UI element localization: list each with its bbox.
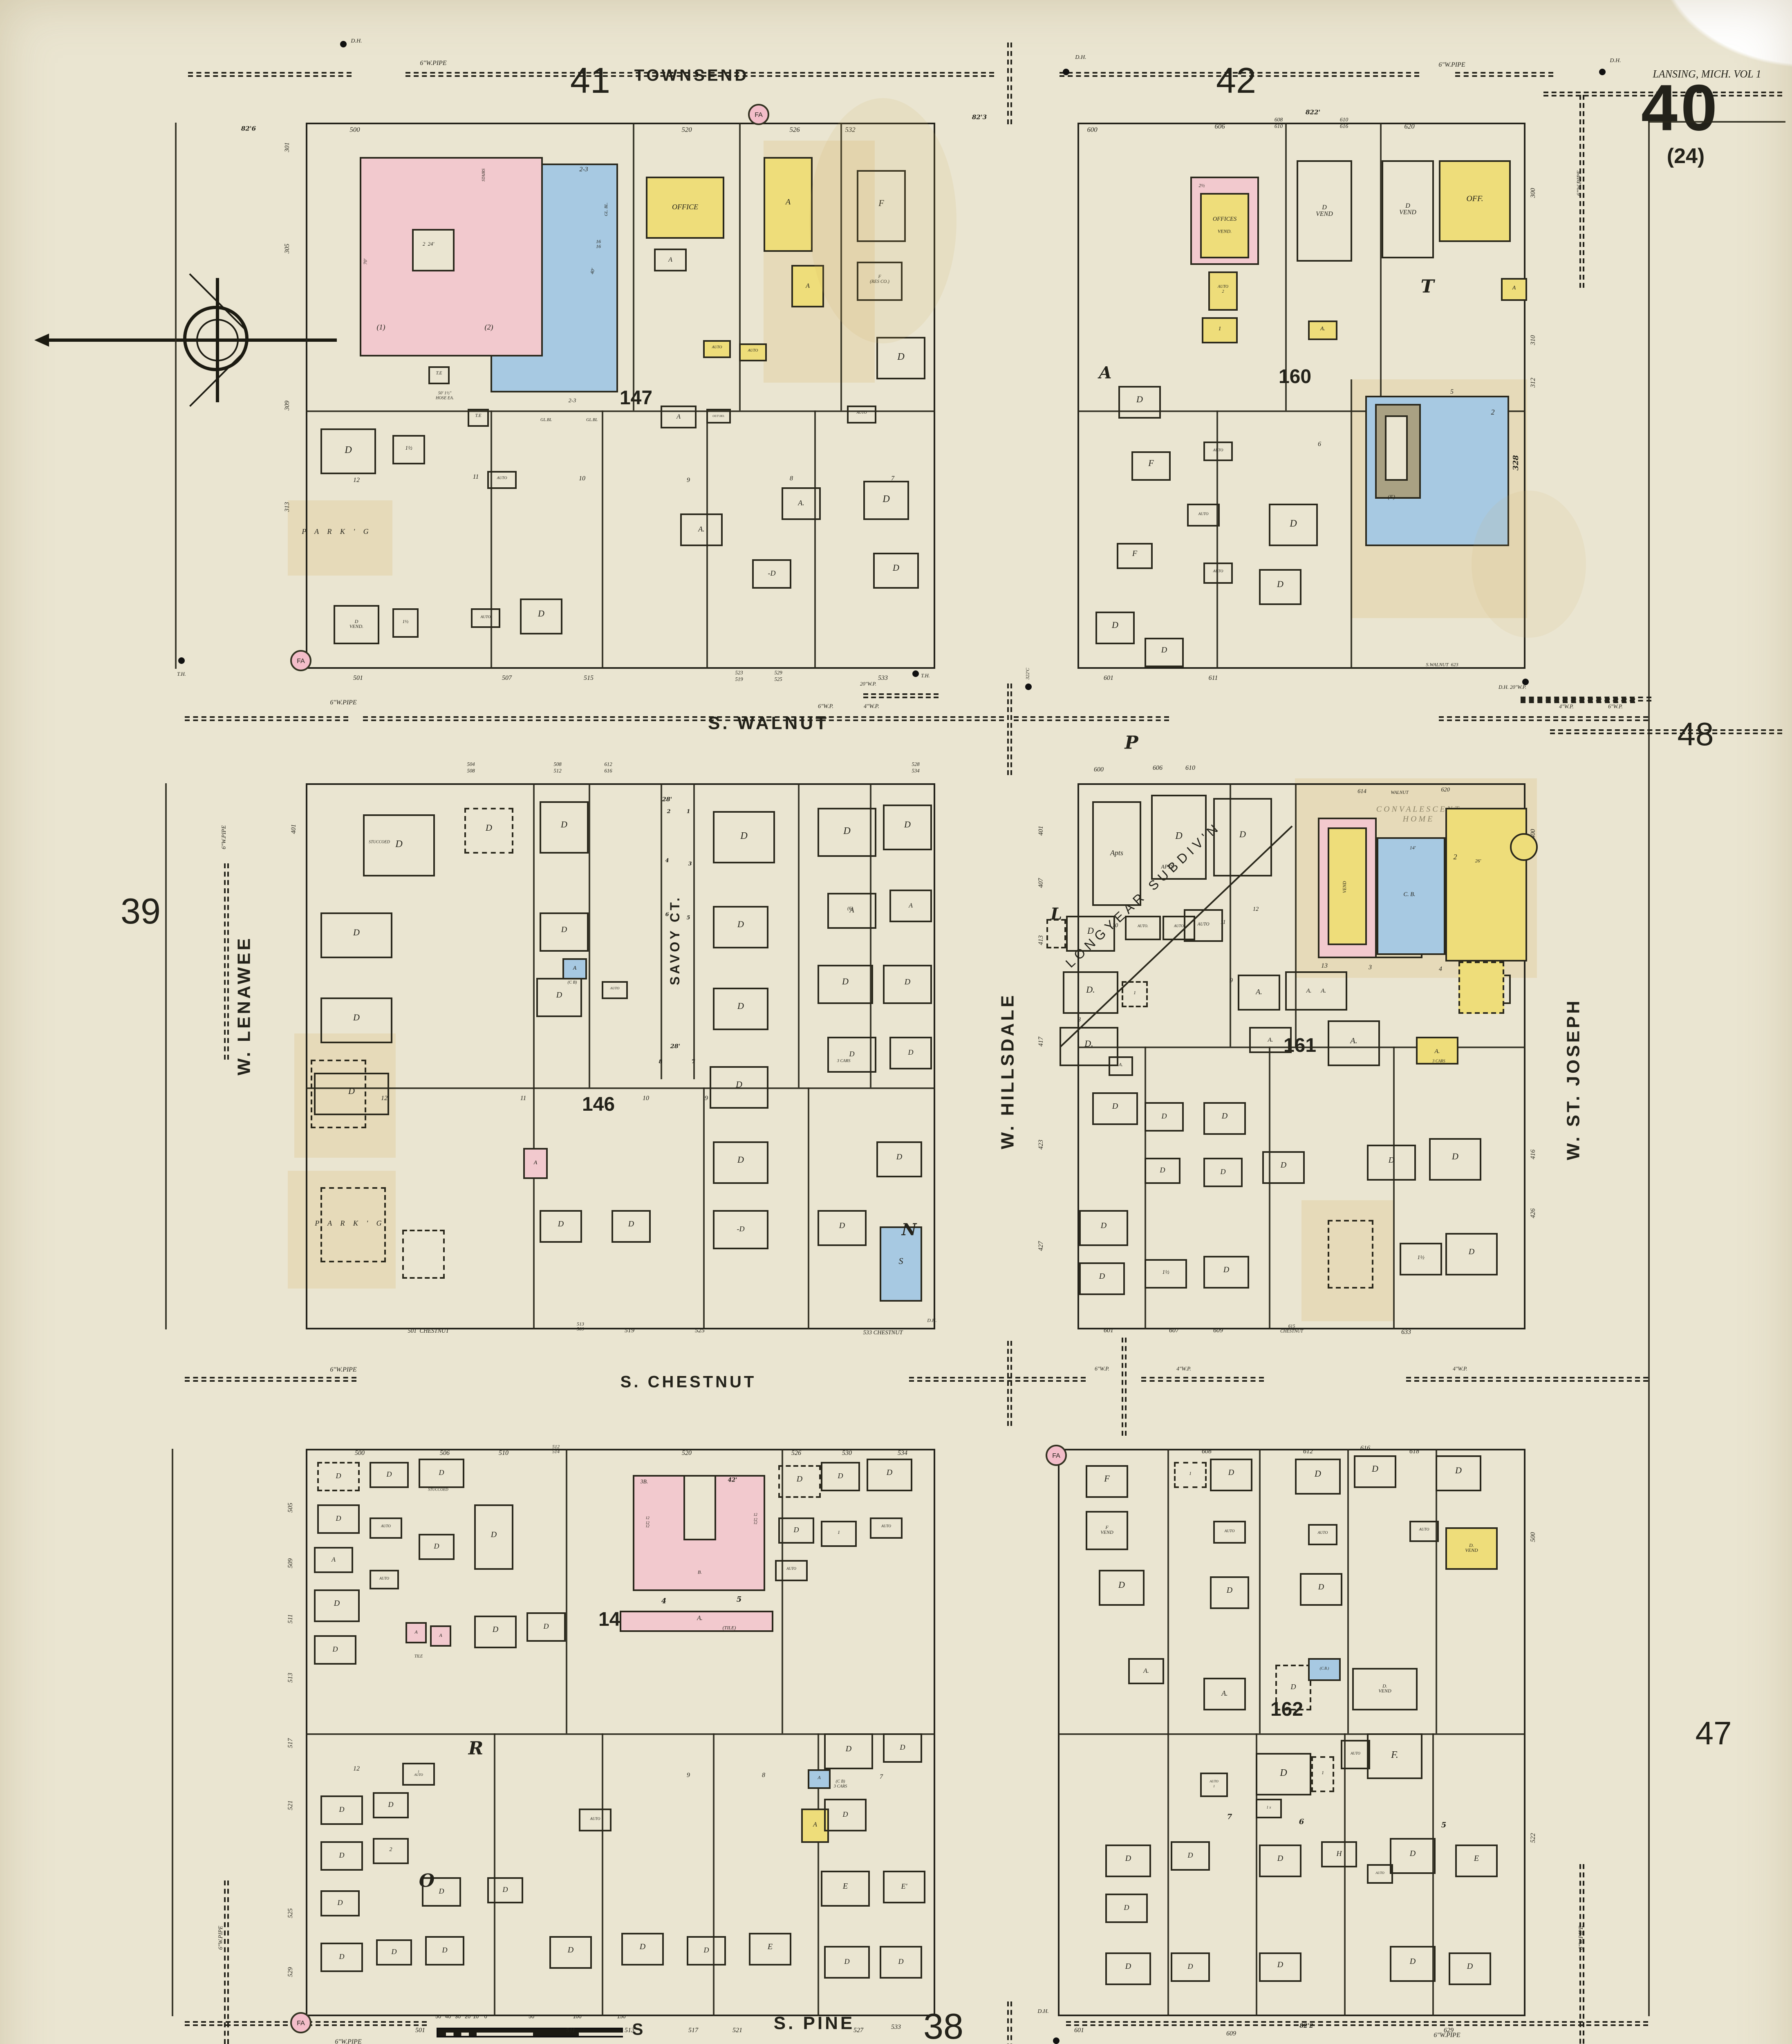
- map-label: 2: [1491, 408, 1495, 416]
- map-label: 504 508: [467, 763, 475, 775]
- building: D: [1105, 1952, 1151, 1985]
- adjacent-sheet-42: 42: [1216, 62, 1256, 102]
- map-label: 4"W.P.: [1176, 1367, 1191, 1373]
- lot-line: [693, 783, 694, 1079]
- map-label: 601: [1074, 2027, 1084, 2035]
- map-label: 506: [440, 1450, 450, 1457]
- building: D: [1390, 1838, 1436, 1874]
- building: A: [405, 1622, 427, 1643]
- map-label: 11: [473, 474, 479, 481]
- map-label: T.H.: [921, 674, 930, 680]
- building: Apts: [1092, 801, 1141, 906]
- building: D: [370, 1462, 409, 1488]
- adjacent-sheet-39: 39: [121, 892, 161, 933]
- lot-line: [533, 783, 534, 1087]
- building: A.: [1308, 320, 1337, 340]
- building: T.E: [468, 409, 489, 427]
- building: D: [540, 801, 589, 854]
- building: D: [824, 1733, 873, 1769]
- map-label: (2): [485, 323, 493, 331]
- map-label: 6"W.PIPE: [1438, 62, 1465, 69]
- map-label: D.H.: [1075, 56, 1086, 62]
- map-label: 9: [687, 477, 690, 484]
- map-label: 612: [1303, 1448, 1313, 1456]
- lot-line: [1393, 1047, 1394, 1329]
- building: A. A.: [1285, 971, 1347, 1011]
- map-label: 501: [353, 675, 363, 682]
- map-label: R: [468, 1739, 484, 1759]
- map-label: D.H.: [1037, 2010, 1048, 2016]
- building: 1: [1311, 1756, 1334, 1792]
- map-label: 505: [287, 1503, 295, 1513]
- map-label: 510: [499, 1450, 508, 1457]
- hydrant-dot: [1599, 69, 1606, 75]
- map-label: 70': [363, 259, 369, 265]
- building: D.: [1063, 971, 1118, 1014]
- water-pipe: [1406, 1377, 1648, 1383]
- lot-line: [306, 410, 935, 412]
- building: 1: [1202, 317, 1238, 343]
- map-label: 4: [665, 859, 669, 865]
- map-label: 606: [1153, 765, 1163, 772]
- building: D: [818, 965, 873, 1004]
- building: A.: [1128, 1658, 1164, 1684]
- building: D: [1300, 1573, 1342, 1606]
- lot-line: [1058, 1733, 1525, 1735]
- map-label: O: [419, 1872, 435, 1892]
- map-label: 6"W.PIPE: [1434, 2032, 1460, 2040]
- building: D: [1213, 798, 1272, 876]
- map-label: 28': [662, 796, 672, 803]
- building: D: [818, 808, 876, 857]
- map-label: (1): [377, 323, 385, 331]
- map-label: 1: [687, 810, 690, 816]
- map-label: B.: [698, 1570, 702, 1576]
- map-label: 427: [1038, 1241, 1045, 1251]
- block-number: 147: [620, 388, 652, 410]
- building: A: [889, 890, 932, 922]
- map-label: N: [902, 1222, 917, 1241]
- map-label: P A R K ' G: [315, 1219, 385, 1227]
- map-label: (C B) 3 CARS: [834, 1781, 847, 1790]
- fire-alarm-badge: FA: [748, 104, 769, 125]
- hydrant-dot: [1063, 69, 1069, 75]
- map-label: 413: [1038, 935, 1045, 945]
- building: AUTO: [703, 340, 731, 358]
- building: D: [549, 1936, 592, 1969]
- fire-alarm-badge: FA: [290, 2012, 311, 2033]
- building: D: [540, 1210, 582, 1243]
- building: D: [778, 1517, 814, 1544]
- building: 1 x: [1256, 1799, 1282, 1818]
- building: -D: [752, 559, 791, 589]
- building: A: [808, 1769, 831, 1789]
- building: D: [1105, 1894, 1148, 1923]
- map-label: 4"W.P.: [1453, 1367, 1467, 1373]
- map-label: 620: [1441, 787, 1450, 793]
- map-label: 517: [688, 2027, 698, 2035]
- map-label: 513: [287, 1673, 295, 1683]
- building: F (RES CO.): [857, 262, 903, 301]
- building: D: [1171, 1952, 1210, 1982]
- map-label: 6"W.PIPE: [1578, 1926, 1584, 1950]
- map-label: 5: [1450, 389, 1454, 396]
- building: E': [883, 1871, 925, 1903]
- building: D: [1259, 1845, 1301, 1877]
- water-pipe: [405, 72, 994, 78]
- building: OUT HO.: [706, 409, 731, 424]
- building: D: [520, 598, 562, 634]
- round-tower: [1510, 833, 1538, 861]
- map-label: 11: [1220, 919, 1225, 926]
- building: [1328, 1220, 1373, 1289]
- map-label: 7: [692, 1060, 695, 1066]
- map-label: 3 CARS: [837, 1060, 851, 1065]
- map-label: 50' 1½" HOSE EA.: [436, 392, 454, 402]
- map-label: 533: [878, 675, 888, 682]
- lot-line: [172, 1449, 173, 2016]
- street-s-chestnut: S. CHESTNUT: [620, 1374, 757, 1393]
- building: D: [713, 988, 768, 1030]
- map-label: 7: [880, 1774, 883, 1781]
- map-label: 5: [1441, 1822, 1447, 1831]
- building: F: [1131, 451, 1171, 481]
- map-label: 82'6: [241, 126, 256, 133]
- map-label: 600: [1094, 766, 1104, 774]
- map-label: 6"W.P.: [1095, 1367, 1109, 1373]
- building: 1½: [392, 608, 419, 638]
- map-label: 20"W.P.: [860, 682, 876, 688]
- lot-line: [491, 410, 492, 669]
- building: A: [654, 249, 687, 271]
- building: F.: [1367, 1733, 1422, 1779]
- map-label: 509: [287, 1558, 295, 1568]
- map-label: 8: [762, 1772, 765, 1780]
- building: [402, 1230, 445, 1279]
- building: D: [1262, 1151, 1305, 1184]
- building: D VEND.: [334, 605, 379, 644]
- water-pipe: [1060, 72, 1419, 78]
- water-pipe: [188, 72, 352, 78]
- building: D: [373, 1792, 409, 1818]
- building: D: [1275, 1665, 1311, 1710]
- building: D: [867, 1459, 912, 1491]
- map-label: 606: [1214, 124, 1225, 132]
- building: AUTO: [1184, 909, 1223, 942]
- map-label: 614: [1357, 788, 1366, 795]
- building: [1200, 193, 1249, 258]
- map-label: 521: [732, 2027, 742, 2035]
- map-label: 11: [520, 1095, 526, 1103]
- hydrant-dot: [912, 670, 919, 677]
- building: D: [487, 1877, 523, 1903]
- map-label: 82'2: [1299, 2024, 1313, 2031]
- lot-line: [1347, 1449, 1348, 1733]
- map-label: 6"W.PIPE: [420, 60, 446, 67]
- scale-tick-label: 0: [484, 2015, 487, 2021]
- lot-line: [661, 783, 662, 1079]
- map-label: 611: [1209, 675, 1218, 682]
- building: F VEND: [1086, 1511, 1128, 1550]
- building: D: [873, 553, 919, 589]
- lot-line: [566, 1449, 567, 1733]
- water-pipe: [185, 1377, 356, 1383]
- water-pipe: [363, 716, 821, 722]
- map-label: 322'C: [1026, 668, 1031, 680]
- map-label: 417: [1038, 1037, 1045, 1047]
- map-label: D.H.: [351, 39, 362, 46]
- building: AUTO: [847, 406, 876, 424]
- map-label: 312: [1530, 378, 1537, 388]
- map-label: 2-3: [579, 166, 588, 174]
- building: OFFICE: [646, 177, 724, 239]
- map-label: 301: [284, 142, 291, 152]
- building: AUTO: [471, 608, 500, 628]
- building: D: [526, 1612, 566, 1642]
- building: [1445, 808, 1527, 961]
- building: D: [880, 1946, 922, 1979]
- building: D: [883, 1733, 922, 1763]
- building: D: [317, 1504, 360, 1534]
- map-label: 6: [1299, 1819, 1304, 1827]
- building: A: [764, 157, 813, 252]
- map-label: (TILE): [723, 1626, 736, 1631]
- map-label: 12 12 12: [645, 1517, 650, 1531]
- map-label: 426: [1530, 1208, 1537, 1218]
- building: AUTO.: [1125, 916, 1161, 940]
- hydrant-dot: [1053, 2037, 1060, 2044]
- lot-line: [1380, 123, 1381, 410]
- map-label: 2-3: [569, 399, 576, 406]
- lot-line: [1269, 1047, 1270, 1329]
- map-label: 607: [1169, 1327, 1179, 1335]
- sheet-number: 40: [1641, 73, 1720, 146]
- building: AUTO: [602, 981, 628, 999]
- map-label: P: [1124, 734, 1138, 754]
- map-label: 401: [1038, 826, 1045, 836]
- map-label: D.H.: [927, 1318, 936, 1324]
- building: D: [320, 1890, 360, 1916]
- adjacent-sheet-41: 41: [570, 62, 610, 102]
- building: D. VEND: [1445, 1527, 1498, 1570]
- building: E: [749, 1933, 791, 1966]
- building: D: [612, 1210, 651, 1243]
- map-label: 8: [790, 475, 793, 483]
- lot-line: [739, 123, 740, 410]
- map-label: 12 12 12: [753, 1514, 757, 1527]
- building: D: [1259, 1952, 1301, 1982]
- building: D: [425, 1936, 464, 1966]
- building: [620, 1611, 773, 1632]
- map-label: 9: [687, 1772, 690, 1780]
- map-label: 8: [659, 1060, 663, 1066]
- map-label: 6: [1318, 441, 1321, 448]
- map-label: 620: [1404, 124, 1414, 132]
- building: D: [1429, 1138, 1481, 1181]
- building: D: [376, 1939, 412, 1966]
- map-label: STUCCOED: [369, 841, 390, 846]
- building: D: [821, 1462, 860, 1491]
- building: D: [464, 808, 513, 854]
- map-label: S: [632, 2022, 643, 2040]
- water-pipe: [1550, 729, 1782, 735]
- building: 1 AUTO: [402, 1763, 435, 1786]
- map-label: 2: [667, 810, 671, 816]
- map-label: WALNUT: [1391, 791, 1408, 796]
- building: -D: [713, 1210, 768, 1249]
- building: D: [540, 912, 589, 952]
- lot-line: [1648, 121, 1785, 122]
- map-label: TILE: [414, 1656, 423, 1660]
- building: 1½: [1145, 1259, 1187, 1289]
- building: 1½: [1400, 1243, 1442, 1275]
- map-label: 533 CHESTNUT: [863, 1329, 903, 1336]
- map-label: 610: [1185, 765, 1195, 772]
- lot-line: [175, 123, 176, 669]
- building: D: [778, 1465, 821, 1498]
- building: D: [1203, 1102, 1246, 1135]
- lot-line: [1167, 1449, 1169, 1733]
- map-label: 2: [1454, 853, 1457, 861]
- building: D: [1151, 795, 1207, 880]
- building: 1½: [392, 435, 425, 464]
- building: D: [320, 1795, 363, 1825]
- map-label: 517: [287, 1738, 295, 1748]
- building: D: [1145, 638, 1184, 667]
- map-label: 508 512: [553, 763, 561, 775]
- street-w-lenawee: W. LENAWEE: [235, 936, 255, 1075]
- map-label: APTS: [1161, 865, 1174, 871]
- lot-line: [165, 783, 166, 1329]
- building: A: [523, 1148, 548, 1179]
- building: AUTO: [370, 1517, 402, 1539]
- lot-line: [703, 1087, 704, 1329]
- building: T.E: [428, 366, 450, 384]
- building: AUTO: [370, 1570, 399, 1589]
- building: [683, 1475, 716, 1540]
- building: D: [876, 1141, 922, 1177]
- building: AUTO: [870, 1517, 903, 1539]
- building: A.: [1238, 975, 1280, 1011]
- street-w-hillsdale: W. HILLSDALE: [999, 993, 1019, 1149]
- lot-line: [713, 1733, 714, 2016]
- building: E: [1455, 1845, 1498, 1877]
- building: [1458, 961, 1504, 1014]
- building: H: [1321, 1841, 1357, 1867]
- building: D: [1118, 386, 1161, 419]
- building: VEND: [1328, 827, 1367, 945]
- map-label: 601: [1104, 1327, 1113, 1335]
- map-label: 601: [1104, 675, 1113, 682]
- map-label: 423: [1038, 1140, 1045, 1150]
- hydrant-dot: [1522, 679, 1529, 685]
- map-label: 513 509: [577, 1322, 584, 1334]
- building: A.: [782, 487, 821, 520]
- building: D: [1210, 1576, 1249, 1609]
- map-label: 526: [791, 1450, 801, 1457]
- map-label: 529 525: [774, 671, 782, 683]
- water-pipe: [185, 716, 348, 722]
- lot-line: [808, 1087, 809, 1329]
- building: A: [562, 958, 587, 979]
- building: 1: [1174, 1462, 1207, 1488]
- building: D: [1079, 1210, 1128, 1246]
- map-label: 407: [1038, 878, 1045, 888]
- fire-alarm-badge: FA: [290, 650, 311, 671]
- water-pipe: [1007, 2001, 1013, 2044]
- map-label: 8: [1077, 1017, 1081, 1024]
- building: AUTO: [775, 1560, 808, 1581]
- map-label: 512 514: [552, 1445, 560, 1456]
- building: AUTO: [1308, 1524, 1337, 1545]
- map-label: T.H.: [177, 672, 186, 678]
- lot-line: [494, 1733, 495, 2016]
- building: D: [320, 1943, 363, 1972]
- map-label: 525: [287, 1908, 295, 1918]
- map-label: 500: [1530, 1532, 1537, 1542]
- water-pipe: [1007, 1341, 1013, 1426]
- map-label: 615 CHESTNUT: [1280, 1325, 1303, 1335]
- building: AUTO: [487, 471, 517, 489]
- lot-line: [1436, 1449, 1437, 1733]
- building: D: [320, 428, 376, 474]
- map-label: 10: [1112, 922, 1118, 929]
- map-label: STUCCOED: [428, 1489, 448, 1494]
- map-label: 12: [353, 1766, 360, 1773]
- map-label: 616: [1360, 1445, 1370, 1452]
- map-label: 10: [643, 1095, 649, 1103]
- building: D: [314, 1635, 356, 1665]
- map-label: 532: [845, 127, 855, 135]
- building: D: [824, 1799, 867, 1831]
- building: [311, 1060, 366, 1128]
- map-label: OFFICES: [1213, 216, 1236, 222]
- fire-alarm-badge: FA: [1046, 1445, 1067, 1466]
- building: D: [317, 1462, 360, 1491]
- map-label: VEND.: [1218, 229, 1232, 235]
- sheet-number-paren: (24): [1667, 145, 1705, 169]
- map-label: 82'3: [972, 114, 987, 121]
- map-label: 3: [688, 862, 692, 868]
- map-label: 6: [665, 913, 669, 919]
- building: D: [1099, 1570, 1145, 1606]
- map-label: 511: [287, 1614, 295, 1624]
- building: D: [1203, 1256, 1249, 1289]
- building: A.: [1109, 1056, 1133, 1076]
- map-label: 328: [1513, 455, 1521, 471]
- map-label: GL.BL: [586, 419, 598, 424]
- street-s-pine: S. PINE: [774, 2014, 855, 2034]
- building: A: [1501, 278, 1527, 301]
- map-label: 4"W.P.: [1559, 705, 1574, 711]
- map-label: 6"W.P.: [1608, 705, 1623, 711]
- scale-tick-label: 30: [455, 2015, 461, 2021]
- adjacent-sheet-48: 48: [1678, 717, 1714, 754]
- lot-line: [602, 1733, 603, 2016]
- building: A.: [1328, 1020, 1380, 1066]
- building: E: [821, 1871, 870, 1907]
- map-label: 520: [682, 1450, 692, 1457]
- building: D: [1436, 1455, 1481, 1491]
- building: D: [1256, 1753, 1311, 1795]
- map-label: 4: [1439, 966, 1442, 973]
- building: D: [1295, 1459, 1341, 1495]
- building: D: [1079, 1262, 1125, 1295]
- building: D: [320, 1841, 363, 1871]
- map-label: 13: [1321, 963, 1328, 970]
- map-label: 401: [291, 824, 298, 834]
- map-label: 6"W.PIPE: [330, 699, 356, 707]
